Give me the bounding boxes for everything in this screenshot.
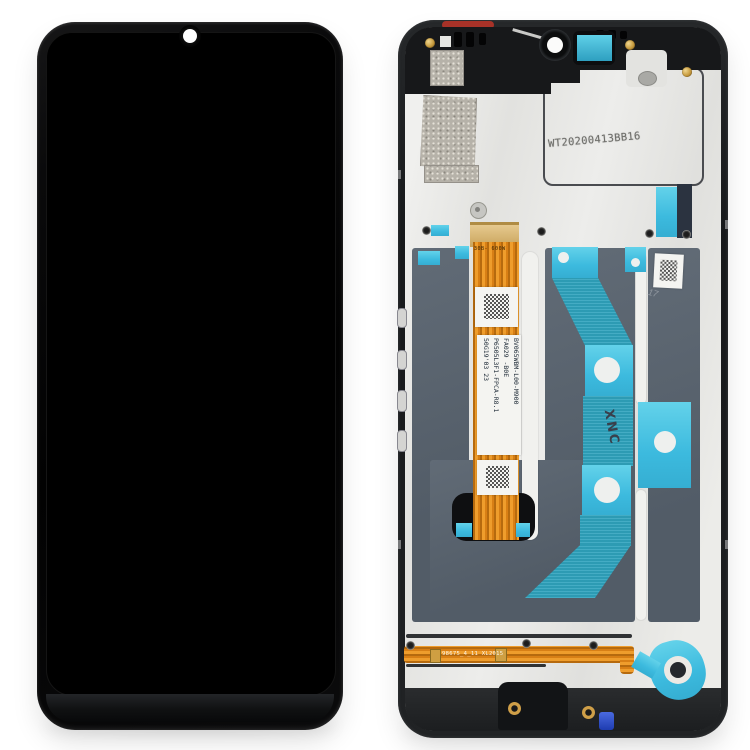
front-chin-bezel <box>46 694 334 722</box>
side-contact <box>397 350 407 370</box>
motor-hole <box>670 662 686 678</box>
handwritten-mark: XNC <box>601 408 622 447</box>
tape-dot <box>654 431 676 453</box>
antenna-line <box>725 540 728 549</box>
gold-pad <box>430 649 441 663</box>
screw-icon <box>406 641 415 650</box>
tape-dot <box>594 477 620 503</box>
routing-rail <box>406 664 546 667</box>
screw-icon <box>682 230 691 239</box>
bracket-oval-hole <box>638 71 657 86</box>
screw-icon <box>425 38 435 48</box>
tape-dot <box>631 258 640 267</box>
flex-label: BV065WBM-L00-M900 FA029 -B0E P6505L3F1-F… <box>477 335 521 455</box>
speaker-contact <box>508 702 521 715</box>
screw-icon <box>645 229 654 238</box>
bottom-flex-code: 98675_4_11 XL2015 <box>442 651 503 657</box>
mini-pad <box>440 36 451 47</box>
qr-pattern <box>486 466 509 488</box>
vent-slot <box>620 31 627 39</box>
tape-bit <box>431 225 449 236</box>
front-screen <box>46 32 336 696</box>
front-camera-dot-icon <box>183 29 197 43</box>
plate-ridge <box>636 490 646 620</box>
qr-label <box>477 460 518 495</box>
blue-clip <box>599 712 614 730</box>
teal-tape-strip <box>552 247 598 278</box>
tape-dot <box>558 252 569 263</box>
back-assembly: WT20200413BB16 XNC <box>398 20 728 738</box>
tape-bit <box>455 246 469 259</box>
side-contact <box>397 430 407 452</box>
tape-bit <box>516 523 530 537</box>
speaker-contact <box>582 706 595 719</box>
screw-icon <box>589 641 598 650</box>
qr-label <box>653 253 684 288</box>
qr-pattern <box>484 294 508 319</box>
flex-top-code: 30B- 600W <box>474 246 506 252</box>
vent-slot <box>466 32 474 47</box>
alignment-hole <box>470 202 487 219</box>
plate-ridge <box>636 254 646 404</box>
teal-tape-strip <box>580 515 631 546</box>
routing-rail <box>406 634 632 638</box>
screw-icon <box>682 67 692 77</box>
vent-slot <box>454 32 462 47</box>
speaker-mesh-tape-film <box>577 35 612 61</box>
adhesive-sticker <box>430 50 464 86</box>
tape-bit <box>418 251 440 265</box>
teal-tape-strip: XNC <box>583 396 633 466</box>
screw-icon <box>522 639 531 648</box>
screw-icon <box>422 226 431 235</box>
tape-dot <box>594 357 620 383</box>
vent-slot <box>479 33 486 45</box>
screw-icon <box>537 227 546 236</box>
adhesive-sticker <box>424 165 479 183</box>
top-frame-section <box>405 68 551 94</box>
antenna-line <box>398 540 401 549</box>
side-contact <box>397 390 407 412</box>
qr-label <box>475 287 518 327</box>
flex-label-line: P6505L3F1-FPCA-R8.1 <box>491 338 501 458</box>
adhesive-sticker <box>420 95 477 169</box>
camera-hole-dot <box>547 37 563 53</box>
qr-pattern <box>660 260 677 282</box>
antenna-line <box>725 220 728 229</box>
front-assembly <box>37 22 343 730</box>
top-frame-section <box>548 68 580 83</box>
flex-label-line: 50G19'03 23 <box>481 338 491 458</box>
flex-label-line: FA029 -B0E <box>501 338 511 458</box>
side-contact <box>397 308 407 328</box>
flex-label-line: BV065WBM-L00-M900 <box>511 338 521 458</box>
antenna-line <box>398 170 401 179</box>
tape-bit <box>456 523 472 537</box>
tape-bit <box>656 187 677 237</box>
screw-icon <box>625 40 635 50</box>
sensor-bracket <box>626 50 667 87</box>
product-photo: WT20200413BB16 XNC <box>0 0 750 750</box>
